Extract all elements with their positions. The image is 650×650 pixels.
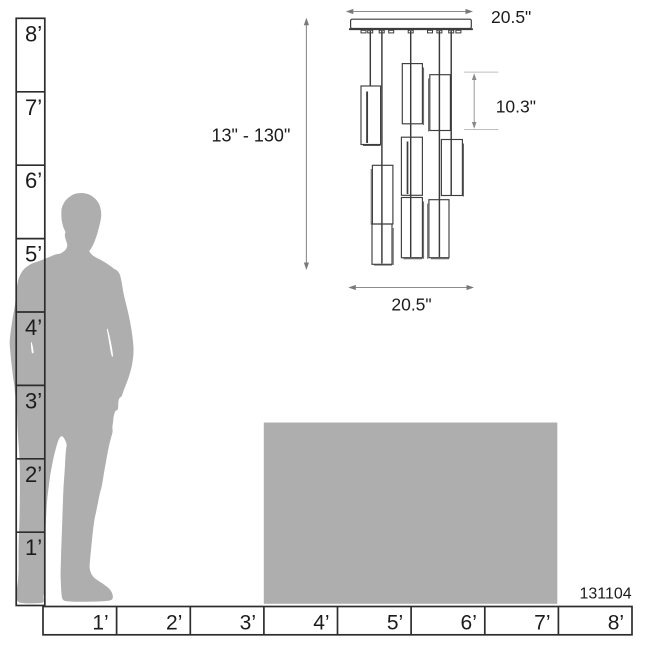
svg-text:20.5": 20.5" [391,295,431,315]
svg-text:7’: 7’ [534,611,550,634]
svg-text:4’: 4’ [25,315,42,340]
svg-text:5’: 5’ [25,242,42,267]
svg-text:6’: 6’ [461,611,477,634]
svg-text:8’: 8’ [25,21,42,46]
svg-text:4’: 4’ [313,611,329,634]
svg-text:8’: 8’ [608,611,624,634]
svg-text:2’: 2’ [25,462,42,487]
svg-text:1’: 1’ [92,611,108,634]
svg-text:3’: 3’ [25,388,42,413]
svg-text:7’: 7’ [25,95,42,120]
svg-text:10.3": 10.3" [496,96,536,116]
svg-text:2’: 2’ [166,611,182,634]
svg-text:1’: 1’ [25,535,42,560]
svg-text:5’: 5’ [387,611,403,634]
svg-text:131104: 131104 [579,586,631,603]
svg-text:3’: 3’ [240,611,256,634]
svg-text:13" - 130": 13" - 130" [212,125,291,145]
svg-text:6’: 6’ [25,168,42,193]
svg-text:20.5": 20.5" [491,7,531,27]
